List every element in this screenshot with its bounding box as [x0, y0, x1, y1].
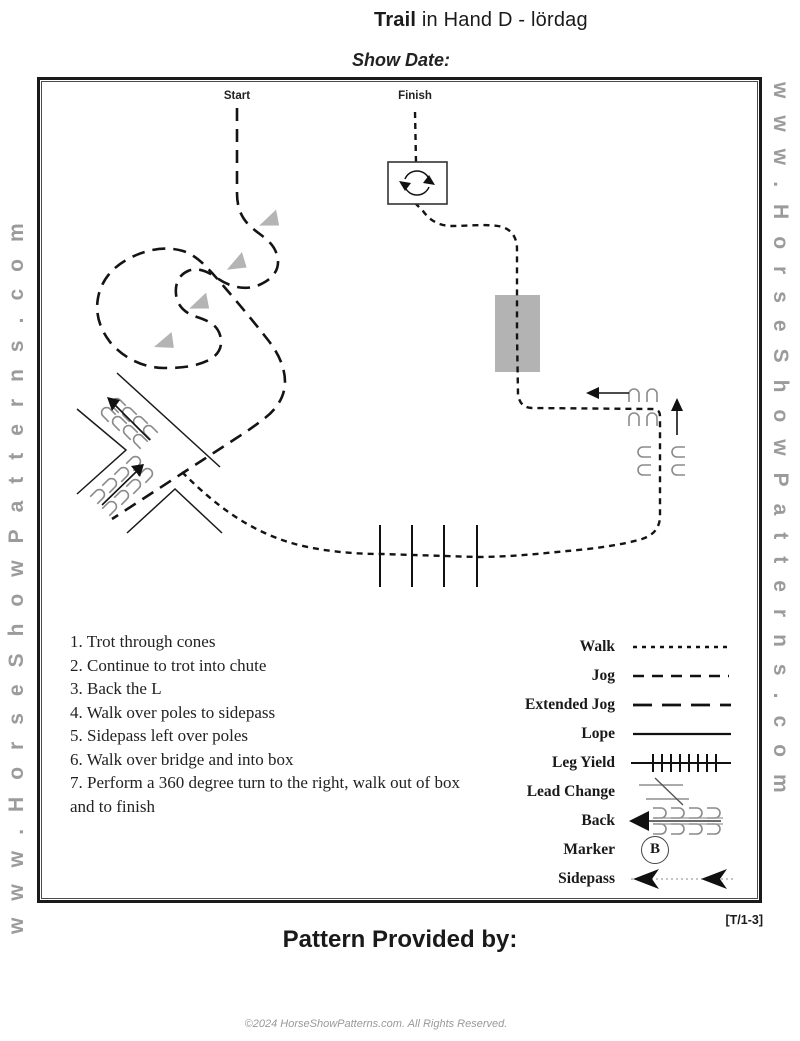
back-l-obstacle [77, 373, 222, 533]
turn-box [388, 162, 447, 204]
finish-label: Finish [392, 90, 438, 102]
jog-line-symbol [625, 661, 737, 690]
legend: Walk Jog Extended Jog Lope Leg Yield [485, 632, 743, 893]
legend-row-lope: Lope [485, 719, 743, 748]
walk-line-symbol [625, 632, 737, 661]
instruction-item: 2. Continue to trot into chute [70, 654, 468, 678]
instruction-item: 4. Walk over poles to sidepass [70, 701, 468, 725]
jog-path [97, 108, 285, 519]
sidepass-symbol [625, 864, 737, 893]
arena-frame: Start Finish 1. Trot through cones 2. Co… [37, 77, 762, 903]
back-arrow-icon [629, 811, 649, 831]
provided-by-label: Pattern Provided by: [0, 926, 800, 954]
lead-change-symbol [625, 777, 737, 806]
cone-icon [186, 293, 211, 315]
sidepass-arrow-icon [633, 869, 659, 889]
left-arrow-icon [586, 387, 599, 399]
instruction-item: 6. Walk over bridge and into box [70, 748, 468, 772]
sidepass-obstacle [586, 387, 685, 475]
watermark-left: www.HorseShowPatterns.com [1, 82, 33, 934]
cone-icon [256, 210, 281, 232]
page-title-detail: in Hand D - lördag [416, 9, 588, 31]
lope-line-symbol [625, 719, 737, 748]
cone-icon [151, 332, 175, 353]
instruction-item: 5. Sidepass left over poles [70, 724, 468, 748]
sidepass-arrow-icon [701, 869, 727, 889]
pattern-code: [T/1-3] [600, 913, 763, 927]
instructions-list: 1. Trot through cones 2. Continue to tro… [70, 630, 468, 818]
legend-row-lead-change: Lead Change [485, 777, 743, 806]
legend-row-walk: Walk [485, 632, 743, 661]
instruction-item: 7. Perform a 360 degree turn to the righ… [70, 771, 468, 818]
legend-row-back: Back [485, 806, 743, 835]
back-symbol [625, 806, 737, 835]
watermark-right: www.HorseShowPatterns.com [764, 82, 796, 934]
cone-icon [223, 252, 249, 275]
extended-jog-line-symbol [625, 690, 737, 719]
show-date-label: Show Date: [352, 50, 450, 71]
back-hoofprints-upper [100, 397, 158, 449]
start-label: Start [214, 90, 260, 102]
leg-yield-symbol [625, 748, 737, 777]
instruction-item: 1. Trot through cones [70, 630, 468, 654]
copyright-text: ©2024 HorseShowPatterns.com. All Rights … [0, 1018, 752, 1030]
legend-row-extended-jog: Extended Jog [485, 690, 743, 719]
marker-symbol: B [625, 835, 737, 864]
page-title-event: Trail [374, 9, 416, 31]
cone-markers [151, 210, 281, 353]
legend-row-jog: Jog [485, 661, 743, 690]
instruction-item: 3. Back the L [70, 677, 468, 701]
back-hoofprints-lower [90, 455, 154, 516]
up-arrow-icon [671, 398, 683, 411]
legend-row-leg-yield: Leg Yield [485, 748, 743, 777]
legend-row-marker: Marker B [485, 835, 743, 864]
legend-row-sidepass: Sidepass [485, 864, 743, 893]
page-title: Trail in Hand D - lördag [374, 9, 588, 32]
marker-circle-icon: B [641, 836, 669, 864]
